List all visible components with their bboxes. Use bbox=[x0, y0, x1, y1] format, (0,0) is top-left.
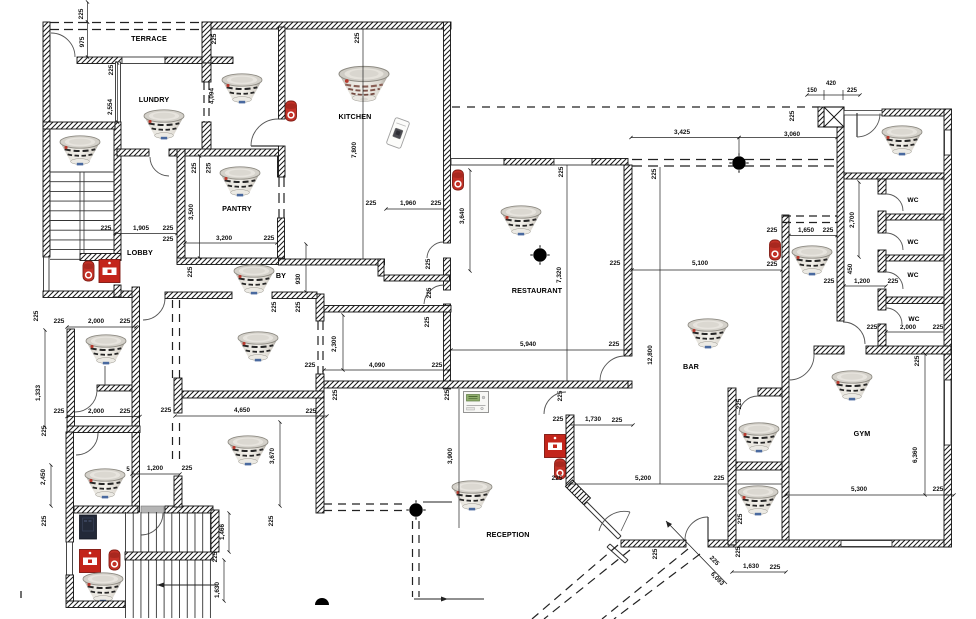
svg-text:2,000: 2,000 bbox=[88, 318, 104, 325]
svg-text:5,300: 5,300 bbox=[851, 486, 867, 493]
svg-text:225: 225 bbox=[714, 475, 725, 482]
svg-text:RESTAURANT: RESTAURANT bbox=[512, 286, 563, 295]
svg-text:225: 225 bbox=[847, 88, 858, 94]
svg-text:225: 225 bbox=[163, 225, 174, 232]
svg-text:KITCHEN: KITCHEN bbox=[339, 112, 372, 121]
svg-text:225: 225 bbox=[161, 407, 172, 414]
svg-text:225: 225 bbox=[354, 32, 361, 43]
svg-text:225: 225 bbox=[444, 389, 451, 400]
svg-text:225: 225 bbox=[108, 64, 115, 75]
svg-text:PANTRY: PANTRY bbox=[222, 204, 252, 213]
svg-text:1,960: 1,960 bbox=[400, 200, 416, 207]
svg-text:BY: BY bbox=[276, 271, 286, 280]
svg-text:225: 225 bbox=[553, 416, 564, 423]
svg-text:225: 225 bbox=[867, 324, 878, 331]
svg-text:2,000: 2,000 bbox=[900, 324, 916, 331]
svg-text:4,094: 4,094 bbox=[209, 88, 216, 104]
svg-text:7,800: 7,800 bbox=[351, 142, 358, 158]
svg-text:225: 225 bbox=[41, 515, 48, 526]
svg-text:225: 225 bbox=[187, 266, 194, 277]
svg-text:150: 150 bbox=[807, 88, 818, 94]
svg-text:225: 225 bbox=[366, 200, 377, 207]
svg-text:225: 225 bbox=[767, 227, 778, 234]
svg-text:225: 225 bbox=[888, 278, 899, 285]
svg-text:225: 225 bbox=[305, 362, 316, 369]
svg-text:225: 225 bbox=[211, 33, 218, 44]
svg-text:225: 225 bbox=[612, 417, 623, 424]
svg-text:225: 225 bbox=[54, 318, 65, 325]
svg-text:225: 225 bbox=[424, 316, 431, 327]
svg-text:GYM: GYM bbox=[854, 429, 871, 438]
svg-text:225: 225 bbox=[182, 465, 193, 472]
svg-text:225: 225 bbox=[914, 355, 921, 366]
svg-text:225: 225 bbox=[212, 551, 219, 562]
svg-text:225: 225 bbox=[268, 515, 275, 526]
svg-text:LUNDRY: LUNDRY bbox=[139, 95, 170, 104]
svg-text:225: 225 bbox=[295, 301, 302, 312]
svg-text:225: 225 bbox=[206, 162, 213, 173]
svg-text:1,905: 1,905 bbox=[133, 225, 149, 232]
svg-text:1,200: 1,200 bbox=[147, 465, 163, 472]
svg-text:WC: WC bbox=[908, 316, 919, 323]
svg-text:2,700: 2,700 bbox=[849, 212, 856, 228]
svg-text:225: 225 bbox=[652, 548, 659, 559]
svg-text:3,425: 3,425 bbox=[674, 129, 690, 136]
svg-text:1,466: 1,466 bbox=[219, 524, 226, 540]
svg-text:975: 975 bbox=[79, 36, 86, 47]
svg-text:WC: WC bbox=[907, 272, 918, 279]
svg-text:225: 225 bbox=[933, 486, 944, 493]
svg-text:420: 420 bbox=[826, 81, 837, 87]
svg-text:225: 225 bbox=[33, 310, 40, 321]
svg-text:2,450: 2,450 bbox=[40, 469, 47, 485]
svg-text:12,800: 12,800 bbox=[647, 345, 654, 365]
svg-text:TERRACE: TERRACE bbox=[131, 34, 167, 43]
svg-text:1,630: 1,630 bbox=[743, 563, 759, 570]
svg-text:225: 225 bbox=[431, 200, 442, 207]
svg-text:225: 225 bbox=[426, 287, 433, 298]
svg-text:225: 225 bbox=[552, 475, 563, 482]
svg-text:225: 225 bbox=[933, 324, 944, 331]
svg-text:3,900: 3,900 bbox=[447, 448, 454, 464]
svg-text:225: 225 bbox=[558, 166, 565, 177]
svg-text:225: 225 bbox=[824, 278, 835, 285]
svg-text:3,200: 3,200 bbox=[216, 235, 232, 242]
svg-text:225: 225 bbox=[332, 389, 339, 400]
svg-text:2,000: 2,000 bbox=[88, 408, 104, 415]
svg-text:225: 225 bbox=[610, 260, 621, 267]
svg-text:1,630: 1,630 bbox=[214, 582, 221, 598]
svg-text:7,320: 7,320 bbox=[556, 267, 563, 283]
svg-text:WC: WC bbox=[907, 239, 918, 246]
svg-text:1,333: 1,333 bbox=[35, 385, 42, 401]
svg-text:4,090: 4,090 bbox=[369, 362, 385, 369]
svg-text:1,200: 1,200 bbox=[854, 278, 870, 285]
svg-text:225: 225 bbox=[767, 261, 778, 268]
svg-text:2,554: 2,554 bbox=[107, 99, 114, 115]
svg-text:3,640: 3,640 bbox=[459, 208, 466, 224]
svg-text:1,730: 1,730 bbox=[585, 416, 601, 423]
svg-text:LOBBY: LOBBY bbox=[127, 248, 153, 257]
svg-text:WC: WC bbox=[907, 197, 918, 204]
svg-text:225: 225 bbox=[54, 408, 65, 415]
svg-text:225: 225 bbox=[191, 162, 198, 173]
svg-text:6,360: 6,360 bbox=[912, 447, 919, 463]
svg-text:225: 225 bbox=[78, 8, 85, 19]
svg-text:225: 225 bbox=[770, 564, 781, 571]
svg-text:4,650: 4,650 bbox=[234, 407, 250, 414]
svg-text:225: 225 bbox=[120, 408, 131, 415]
svg-text:225: 225 bbox=[789, 110, 796, 121]
svg-text:225: 225 bbox=[120, 318, 131, 325]
svg-text:225: 225 bbox=[101, 225, 112, 232]
svg-text:225: 225 bbox=[736, 398, 743, 409]
svg-text:930: 930 bbox=[295, 273, 302, 284]
svg-text:5,100: 5,100 bbox=[692, 260, 708, 267]
svg-text:225: 225 bbox=[823, 227, 834, 234]
svg-text:3,500: 3,500 bbox=[188, 204, 195, 220]
svg-text:RECEPTION: RECEPTION bbox=[486, 530, 529, 539]
svg-text:5,940: 5,940 bbox=[520, 341, 536, 348]
svg-text:450: 450 bbox=[847, 263, 854, 274]
svg-text:2,300: 2,300 bbox=[331, 336, 338, 352]
svg-text:5,200: 5,200 bbox=[635, 475, 651, 482]
svg-text:225: 225 bbox=[609, 341, 620, 348]
svg-text:3,670: 3,670 bbox=[269, 448, 276, 464]
svg-text:225: 225 bbox=[425, 258, 432, 269]
svg-text:225: 225 bbox=[163, 236, 174, 243]
svg-text:BAR: BAR bbox=[683, 362, 700, 371]
svg-text:225: 225 bbox=[737, 513, 744, 524]
svg-text:3,060: 3,060 bbox=[784, 131, 800, 138]
svg-text:225: 225 bbox=[264, 235, 275, 242]
svg-text:1,650: 1,650 bbox=[798, 227, 814, 234]
svg-text:225: 225 bbox=[271, 301, 278, 312]
svg-text:225: 225 bbox=[41, 425, 48, 436]
svg-text:225: 225 bbox=[432, 362, 443, 369]
svg-text:225: 225 bbox=[306, 408, 317, 415]
svg-text:225: 225 bbox=[651, 168, 658, 179]
svg-text:225: 225 bbox=[735, 546, 742, 557]
